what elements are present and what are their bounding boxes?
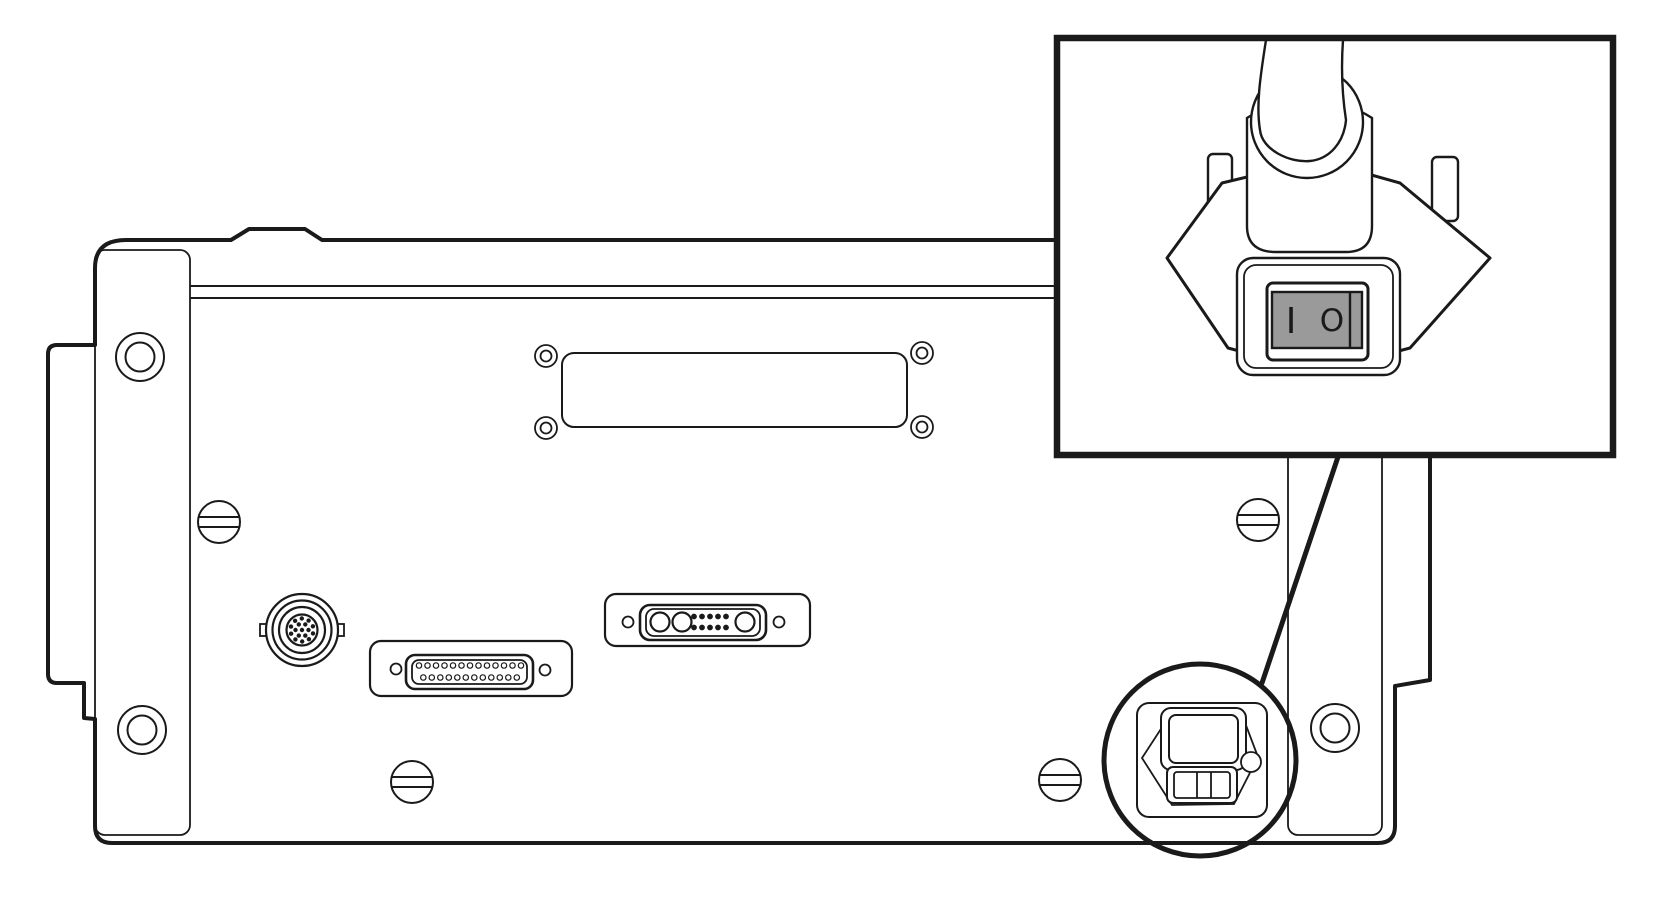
inlet-side-dot (1241, 752, 1261, 772)
technical-diagram: I O (0, 0, 1665, 911)
switch-on-marking: I (1286, 301, 1297, 342)
plug-cable (1258, 40, 1346, 161)
inset-closeup: I O (1057, 38, 1613, 455)
diagram-page: I O (0, 0, 1665, 911)
power-inlet-module (1137, 703, 1267, 817)
inlet-socket-outer (1161, 708, 1246, 770)
switch-off-marking: O (1320, 303, 1344, 339)
db25-connector (370, 641, 572, 696)
combo-dsub-connector (605, 594, 810, 646)
rocker-switch: I O (1267, 283, 1368, 360)
